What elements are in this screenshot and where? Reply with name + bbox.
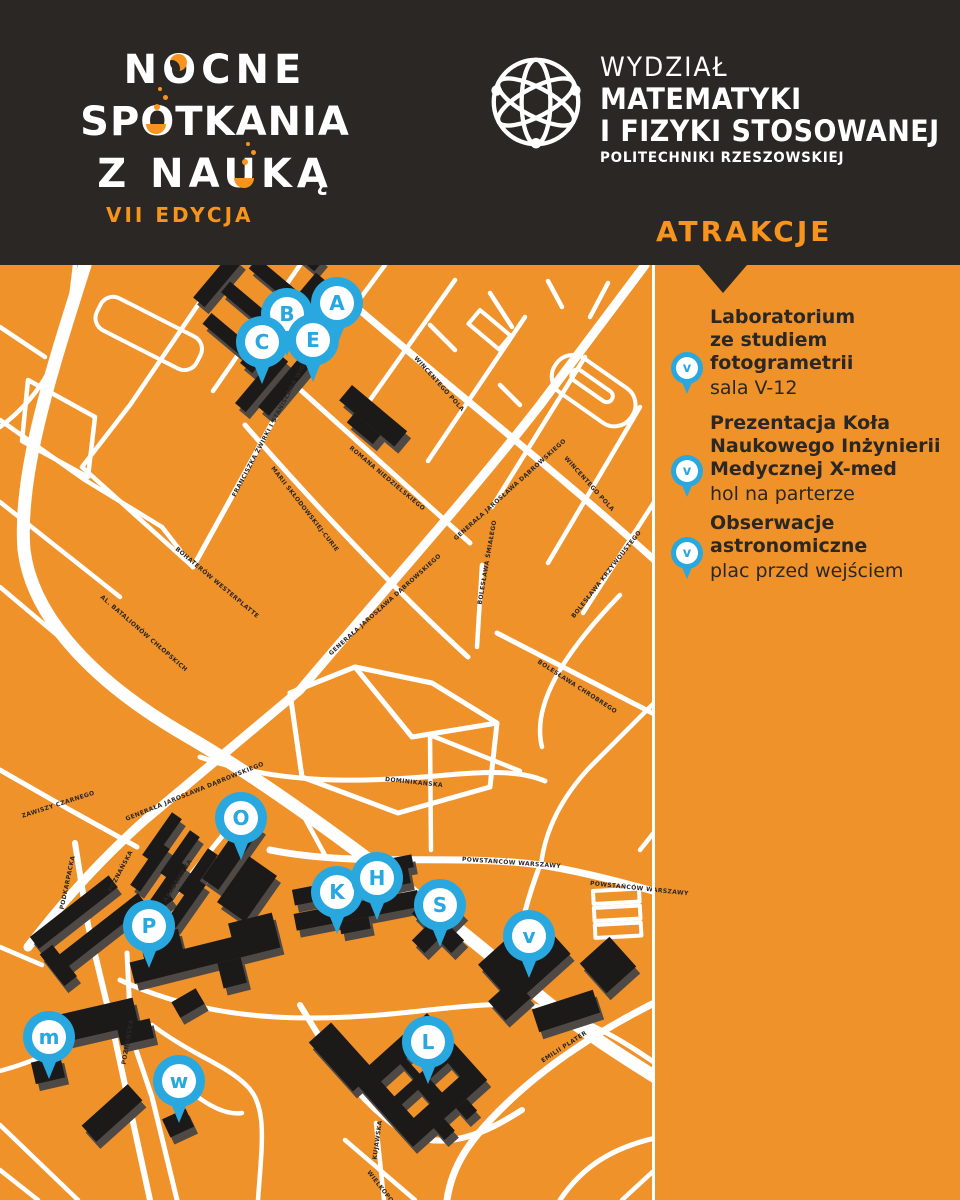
map-marker-v: v <box>503 910 555 962</box>
bubble-icon <box>242 159 248 165</box>
atom-icon <box>488 54 584 150</box>
event-logo-line2: SPOTKANIA <box>70 96 360 148</box>
pin-letter: v <box>671 352 703 384</box>
attraction-pin-icon: v <box>671 455 703 487</box>
map-marker-e: E <box>287 314 339 366</box>
marker-letter: w <box>153 1055 205 1107</box>
marker-letter: E <box>287 314 339 366</box>
marker-letter: C <box>236 316 288 368</box>
speech-bubble-pointer <box>699 265 747 293</box>
marker-letter: P <box>123 900 175 952</box>
marker-letter: S <box>414 879 466 931</box>
bubble-icon <box>154 104 160 110</box>
event-edition: VII EDYCJA <box>70 202 360 228</box>
marker-letter: H <box>351 852 403 904</box>
attraction-subtitle: plac przed wejściem <box>710 560 960 583</box>
attraction-title: Prezentacja Koła Naukowego Inżynierii Me… <box>710 412 960 481</box>
panel-separator-line <box>652 265 655 1200</box>
map-marker-c: C <box>236 316 288 368</box>
attraction-pin-icon: v <box>671 352 703 384</box>
faculty-logo-text: WYDZIAŁ MATEMATYKI I FIZYKI STOSOWANEJ P… <box>600 52 940 169</box>
event-logo-line1: NOCNE <box>70 44 360 96</box>
map-canvas <box>0 265 655 1200</box>
attraction-title: Obserwacje astronomiczne <box>710 512 960 558</box>
event-logo: NOCNE SPOTKANIA Z NAUKĄ VII EDYCJA <box>70 44 360 228</box>
map-marker-h: H <box>351 852 403 904</box>
campus-map <box>0 265 655 1200</box>
attraction-pin-icon: v <box>671 537 703 569</box>
map-marker-p: P <box>123 900 175 952</box>
bubble-icon <box>251 150 256 155</box>
map-marker-o: O <box>215 792 267 844</box>
bubble-icon <box>158 87 162 91</box>
faculty-line3: I FIZYKI STOSOWANEJ <box>600 115 940 147</box>
faculty-line1: WYDZIAŁ <box>600 52 940 83</box>
map-marker-s: S <box>414 879 466 931</box>
map-marker-w: w <box>153 1055 205 1107</box>
attraction-subtitle: hol na parterze <box>710 483 960 506</box>
bubble-icon <box>163 95 168 100</box>
marker-letter: O <box>215 792 267 844</box>
marker-letter: m <box>23 1011 75 1063</box>
attraction-title: Laboratorium ze studiem fotogrametrii <box>710 306 960 375</box>
marker-letter: L <box>402 1016 454 1068</box>
attraction-item-1: vLaboratorium ze studiem fotogrametriisa… <box>710 306 960 400</box>
bubble-icon <box>246 142 250 146</box>
map-marker-m: m <box>23 1011 75 1063</box>
faculty-line2: MATEMATYKI <box>600 83 940 115</box>
attraction-item-3: vObserwacje astronomiczneplac przed wejś… <box>710 512 960 583</box>
map-marker-l: L <box>402 1016 454 1068</box>
attraction-item-2: vPrezentacja Koła Naukowego Inżynierii M… <box>710 412 960 506</box>
crescent-moon-icon <box>170 54 187 71</box>
marker-letter: v <box>503 910 555 962</box>
attraction-subtitle: sala V-12 <box>710 377 960 400</box>
pin-letter: v <box>671 537 703 569</box>
event-logo-line3: Z NAUKĄ <box>70 148 360 200</box>
pin-letter: v <box>671 455 703 487</box>
attractions-heading: ATRAKCJE <box>656 215 832 248</box>
faculty-line4: POLITECHNIKI RZESZOWSKIEJ <box>600 147 940 169</box>
